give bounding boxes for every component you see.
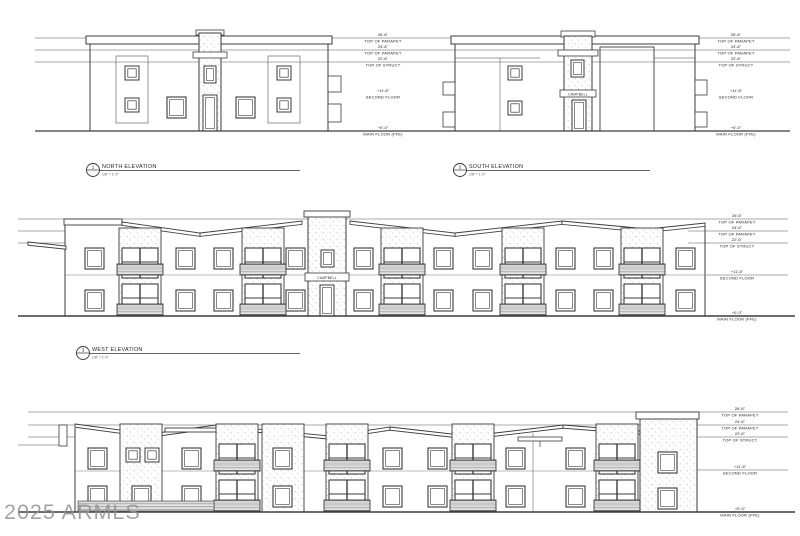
level-label-parapet-high: TOP OF PARAPET — [717, 39, 754, 44]
south-level-annotations: 26'-6" TOP OF PARAPET 24'-6" TOP OF PARA… — [716, 32, 756, 137]
level-label-main-floor: MAIN FLOOR (FFE) — [363, 132, 403, 137]
window — [508, 66, 522, 80]
level-value-parapet-low: 24'-6" — [731, 44, 742, 49]
stucco-bays — [120, 424, 304, 512]
level-label-struct: TOP OF STRUCT — [366, 63, 401, 68]
elevation-drawing-sheet: CAMPBELL 26'-6" TOP OF PARAPET 24'-6" TO… — [0, 0, 800, 536]
window — [277, 66, 291, 80]
elevation-title: SOUTH ELEVATION — [469, 164, 523, 170]
lower-level-annotations: 26'-6" TOP OF PARAPET 24'-6" TOP OF PARA… — [720, 406, 760, 518]
level-value-second-floor: +11'-6" — [734, 464, 747, 469]
level-label-parapet-low: TOP OF PARAPET — [718, 232, 755, 237]
wall-return — [328, 104, 341, 122]
level-value-second-floor: +11'-6" — [730, 88, 743, 93]
level-value-main-floor: +0'-0" — [735, 506, 746, 511]
door — [203, 95, 217, 131]
level-value-parapet-low: 24'-6" — [732, 225, 743, 230]
wall-return — [443, 82, 455, 95]
balcony-bays — [117, 228, 665, 316]
level-value-parapet-high: 26'-6" — [732, 213, 743, 218]
level-value-parapet-high: 26'-6" — [378, 32, 389, 37]
scale-label: 1/8" = 1'-0" — [102, 173, 119, 177]
west-elevation-title: 3 WEST ELEVATION 1/8" = 1'-0" — [77, 347, 301, 360]
canopy — [518, 437, 562, 441]
building-sign: CAMPBELL — [568, 92, 588, 96]
level-value-second-floor: +11'-6" — [377, 88, 390, 93]
cornice — [193, 52, 227, 58]
level-label-parapet-low: TOP OF PARAPET — [364, 51, 401, 56]
level-label-main-floor: MAIN FLOOR (FFE) — [720, 513, 760, 518]
window — [277, 98, 291, 112]
level-value-struct: 22'-6" — [735, 431, 746, 436]
south-elevation-title: 2 SOUTH ELEVATION 1/8" = 1'-0" — [454, 164, 651, 177]
level-value-main-floor: +0'-0" — [731, 125, 742, 130]
north-level-annotations: 26'-6" TOP OF PARAPET 24'-6" TOP OF PARA… — [363, 32, 403, 137]
level-value-parapet-high: 26'-6" — [731, 32, 742, 37]
level-label-struct: TOP OF STRUCT — [723, 438, 758, 443]
building-sign: CAMPBELL — [317, 276, 337, 280]
level-value-parapet-high: 26'-6" — [735, 406, 746, 411]
window — [658, 452, 677, 473]
callout-number: 3 — [82, 348, 85, 353]
wall-return — [59, 425, 67, 446]
level-value-parapet-low: 24'-6" — [735, 419, 746, 424]
level-label-second-floor: SECOND FLOOR — [720, 276, 754, 281]
cornice — [558, 50, 598, 56]
scale-label: 1/8" = 1'-0" — [92, 356, 109, 360]
west-level-annotations: 26'-6" TOP OF PARAPET 24'-6" TOP OF PARA… — [717, 213, 757, 322]
elevation-title: WEST ELEVATION — [92, 347, 143, 353]
wall-return — [695, 112, 707, 127]
level-label-second-floor: SECOND FLOOR — [719, 95, 753, 100]
watermark-text: 2025 ARMLS — [4, 500, 141, 524]
north-elevation-title: 1 NORTH ELEVATION 1/8" = 1'-0" — [87, 164, 301, 177]
level-value-struct: 22'-6" — [731, 56, 742, 61]
callout-number: 1 — [92, 165, 95, 170]
level-value-main-floor: +0'-0" — [732, 310, 743, 315]
level-label-parapet-low: TOP OF PARAPET — [717, 51, 754, 56]
level-value-parapet-low: 24'-6" — [378, 44, 389, 49]
level-value-struct: 22'-6" — [378, 56, 389, 61]
level-label-main-floor: MAIN FLOOR (FFE) — [716, 132, 756, 137]
level-label-second-floor: SECOND FLOOR — [366, 95, 400, 100]
level-value-struct: 22'-6" — [732, 237, 743, 242]
callout-number: 2 — [459, 165, 462, 170]
wall-return — [328, 76, 341, 92]
level-value-main-floor: +0'-0" — [378, 125, 389, 130]
level-value-second-floor: +11'-6" — [731, 269, 744, 274]
door — [320, 285, 334, 316]
window — [658, 488, 677, 509]
level-label-struct: TOP OF STRUCT — [719, 63, 754, 68]
drawing-sheet: CAMPBELL 26'-6" TOP OF PARAPET 24'-6" TO… — [0, 0, 800, 536]
level-label-parapet-low: TOP OF PARAPET — [721, 426, 758, 431]
window — [125, 98, 139, 112]
level-label-struct: TOP OF STRUCT — [720, 244, 755, 249]
window — [167, 97, 186, 118]
scale-label: 1/8" = 1'-0" — [469, 173, 486, 177]
level-label-main-floor: MAIN FLOOR (FFE) — [717, 317, 757, 322]
level-label-parapet-high: TOP OF PARAPET — [721, 413, 758, 418]
entry-tower: CAMPBELL — [304, 211, 350, 316]
window — [236, 97, 255, 118]
level-label-parapet-high: TOP OF PARAPET — [364, 39, 401, 44]
wall-return — [695, 80, 707, 95]
west-elevation-drawing: CAMPBELL 26'-6" TOP OF PARAPET 24'-6" TO… — [18, 211, 795, 360]
door — [572, 100, 586, 131]
wall-return — [443, 112, 455, 127]
level-label-second-floor: SECOND FLOOR — [723, 471, 757, 476]
window — [125, 66, 139, 80]
elevation-title: NORTH ELEVATION — [102, 164, 157, 170]
wall-panel — [600, 47, 654, 131]
window — [508, 101, 522, 115]
end-tower — [636, 412, 699, 512]
level-label-parapet-high: TOP OF PARAPET — [718, 220, 755, 225]
